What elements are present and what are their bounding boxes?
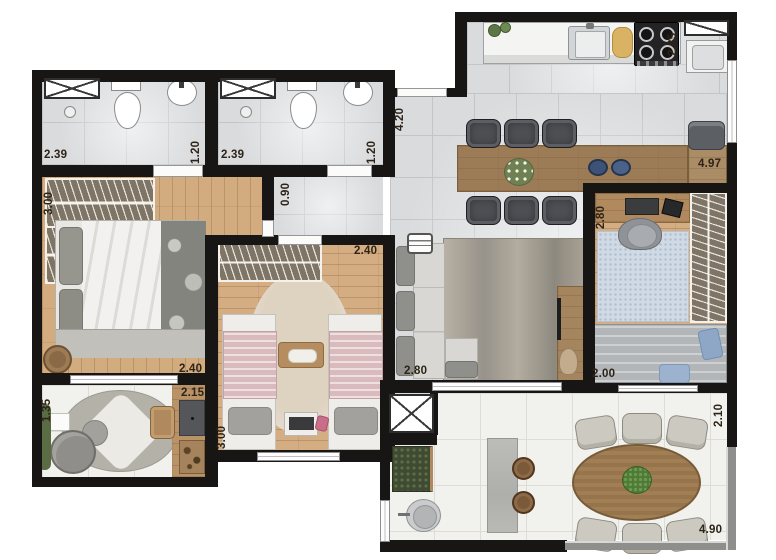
dimension-label: 2.39: [44, 150, 67, 162]
terrace-railing: [565, 541, 727, 550]
pink-blanket: [223, 331, 277, 399]
monitor-icon: [625, 198, 659, 215]
kitchen-window-icon: [684, 20, 729, 36]
bar-stool: [512, 491, 535, 514]
wall: [588, 183, 737, 193]
kitchen-sink-icon: [568, 26, 610, 60]
shaft-x-icon: [389, 394, 434, 433]
wall: [262, 177, 274, 222]
office-window: [618, 385, 698, 392]
pink-blanket: [329, 331, 383, 399]
garden-window: [380, 500, 390, 542]
wall: [380, 433, 437, 445]
wall: [455, 12, 467, 96]
wardrobe: [690, 192, 727, 323]
bed-pillow: [228, 407, 272, 435]
terrace-chair: [622, 413, 662, 444]
bedroom2-window: [257, 452, 340, 461]
foot-blanket: [56, 329, 206, 358]
wall: [380, 540, 567, 552]
vertical-garden: [392, 446, 433, 492]
washing-machine-icon: [688, 121, 725, 150]
blue-bowl: [588, 159, 608, 176]
bar-stool: [512, 457, 535, 480]
bedroom1-door: [262, 220, 274, 237]
dimension-label: 2.00: [592, 369, 615, 381]
sofa-seat: [413, 243, 445, 379]
dimension-label: 2.40: [179, 364, 202, 376]
dimension-label: 2.40: [354, 246, 377, 258]
faucet-icon: [398, 513, 410, 516]
sofa-back-cushion: [396, 291, 415, 331]
dining-chair: [504, 196, 539, 225]
bedroom1-window: [70, 375, 178, 384]
service-window: [727, 60, 737, 143]
round-nightstand: [43, 345, 72, 374]
wall: [32, 70, 42, 487]
bathroom1-door: [153, 165, 203, 177]
dining-chair: [466, 119, 501, 148]
tv-icon: [557, 298, 561, 340]
single-bed: [328, 314, 382, 450]
dimension-label: 4.20: [395, 97, 407, 131]
plant-icon: [500, 22, 511, 33]
dining-chair: [466, 196, 501, 225]
bathroom2-door: [327, 165, 372, 177]
garden-basin-icon: [406, 499, 441, 532]
armchair: [50, 430, 96, 474]
dimension-label: 4.90: [699, 525, 722, 537]
single-bed: [222, 314, 276, 450]
wall: [32, 477, 216, 487]
dimension-label: 2.80: [596, 195, 608, 229]
blue-pillow: [659, 364, 690, 383]
pet-dog: [559, 348, 578, 375]
ac-unit-icon: [407, 233, 433, 254]
shower-box-icon: [44, 78, 100, 99]
faucet-icon: [586, 23, 594, 29]
terrace-chair: [665, 414, 709, 451]
office-chair: [618, 218, 662, 250]
cutting-board: [612, 27, 633, 58]
dimension-label: 3.00: [217, 415, 229, 449]
dimension-label: 2.15: [181, 388, 204, 400]
dimension-label: 3.00: [44, 181, 56, 215]
clothes-bench: [278, 342, 324, 368]
dining-chair: [542, 196, 577, 225]
bed-pillow: [334, 407, 378, 435]
table-centerpiece-plant: [622, 466, 652, 494]
blue-bowl: [611, 159, 631, 176]
floor-plan: 2.39 1.20 2.39 1.20 3.00 0.90 4.20 2.85 …: [0, 0, 776, 560]
desk-top: [179, 400, 205, 436]
island-counter: [487, 438, 518, 533]
bedroom2-door: [278, 235, 322, 245]
entrance-door: [397, 88, 447, 97]
stove-knobs: [637, 61, 678, 66]
dimension-label: 2.80: [404, 366, 427, 378]
dimension-label: 1.20: [191, 130, 203, 164]
double-bed: [55, 220, 205, 358]
terrace-sliding-door: [432, 382, 562, 391]
dining-chair: [504, 119, 539, 148]
terrace-railing: [726, 447, 736, 550]
flower-centerpiece: [504, 158, 534, 186]
terrace-chair: [574, 414, 618, 451]
shelf-unit: [179, 440, 205, 474]
wardrobe: [218, 243, 322, 282]
vanity-desk: [284, 412, 318, 436]
shower-head-icon: [240, 106, 252, 118]
shower-box-icon: [220, 78, 276, 99]
dimension-label: 0.90: [281, 172, 293, 206]
dimension-label: 4.97: [698, 159, 721, 171]
wall: [205, 70, 218, 177]
wall: [583, 183, 595, 393]
dimension-label: 1.20: [367, 130, 379, 164]
dimension-label: 2.10: [714, 393, 726, 427]
desk-chair: [150, 406, 175, 439]
dimension-label: 2.85: [668, 22, 680, 56]
dimension-label: 1.35: [42, 388, 54, 422]
dining-chair: [542, 119, 577, 148]
sofa-corner-back: [445, 361, 478, 378]
bed-pillow: [59, 227, 83, 285]
shower-head-icon: [64, 106, 76, 118]
dimension-label: 2.39: [221, 150, 244, 162]
laundry-tank-icon: [686, 40, 728, 73]
